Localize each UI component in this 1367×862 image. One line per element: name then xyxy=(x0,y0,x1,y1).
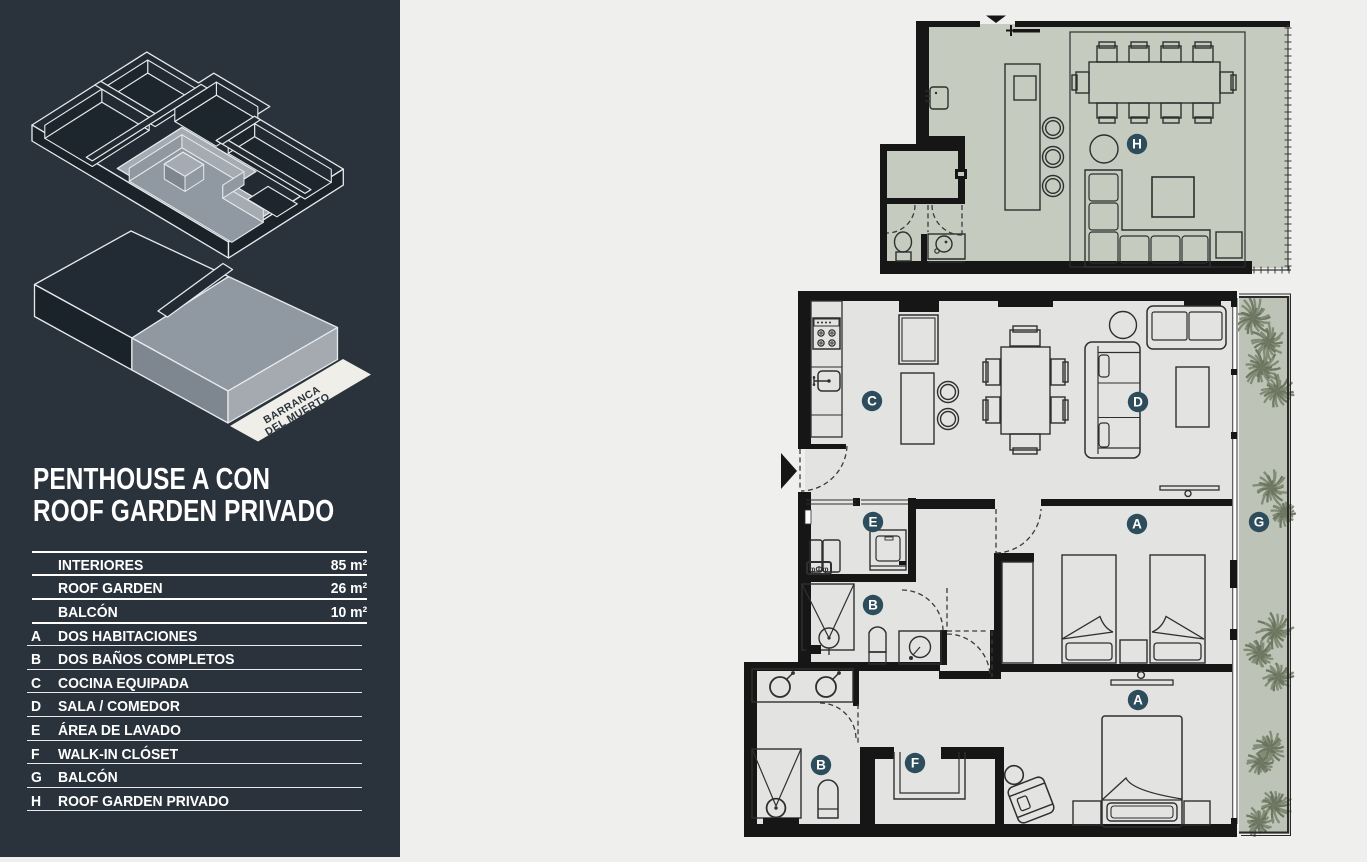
svg-text:B: B xyxy=(868,598,878,613)
svg-text:B: B xyxy=(816,758,826,773)
svg-text:D: D xyxy=(1133,395,1143,410)
svg-text:A: A xyxy=(1132,517,1142,532)
svg-text:E: E xyxy=(868,515,877,530)
svg-text:φΦφ: φΦφ xyxy=(809,564,828,574)
svg-text:A: A xyxy=(1133,693,1143,708)
svg-text:G: G xyxy=(1254,515,1265,530)
svg-text:H: H xyxy=(1132,137,1142,152)
svg-text:C: C xyxy=(867,394,877,409)
svg-text:F: F xyxy=(911,756,919,771)
